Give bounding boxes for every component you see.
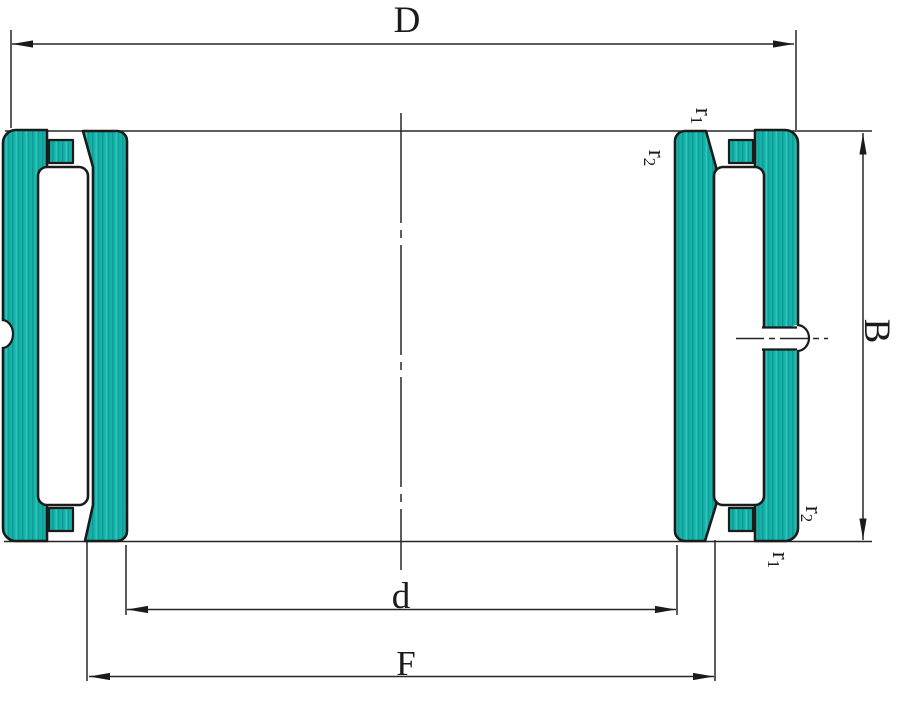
right-needle-roller — [714, 167, 764, 505]
right-cage-top — [729, 140, 753, 163]
arrow-F-left — [89, 673, 110, 680]
r1-top-sub: 1 — [688, 116, 707, 125]
dim-label-F-text: F — [396, 644, 415, 683]
drawing-canvas: D d F B r1 r2 r2 r1 — [0, 0, 900, 702]
dim-label-D: D — [394, 0, 421, 41]
left-cage-bottom — [49, 508, 73, 531]
arrow-d-right — [655, 606, 676, 613]
r2-top-base: r — [643, 150, 669, 158]
dim-label-d: d — [392, 576, 411, 617]
r2-bottom-sub: 2 — [798, 514, 817, 523]
radius-label-r1-bottom: r1 — [765, 552, 794, 569]
radius-label-r2-top: r2 — [641, 150, 670, 167]
r1-bottom-sub: 1 — [765, 560, 784, 569]
arrow-B-top — [859, 134, 866, 155]
r1-top-base: r — [690, 108, 716, 116]
left-cage-top — [49, 140, 73, 163]
dim-label-B-text: B — [857, 319, 898, 344]
dim-label-d-text: d — [392, 576, 411, 617]
dim-label-F: F — [396, 644, 415, 683]
left-needle-roller — [38, 167, 88, 505]
arrow-F-right — [693, 673, 714, 680]
right-inner-ring — [675, 131, 716, 541]
arrow-D-left — [12, 40, 33, 47]
arrow-D-right — [773, 40, 794, 47]
dimension-labels: D d F B r1 r2 r2 r1 — [392, 0, 898, 683]
radius-label-r2-bottom: r2 — [798, 506, 827, 523]
r1-bottom-base: r — [767, 552, 793, 560]
bearing-technical-drawing: D d F B r1 r2 r2 r1 — [0, 0, 900, 702]
arrow-B-bottom — [859, 519, 866, 540]
dim-label-B: B — [857, 319, 898, 344]
arrow-d-left — [127, 606, 148, 613]
dim-label-D-text: D — [394, 0, 421, 41]
r2-bottom-base: r — [800, 506, 826, 514]
r2-top-sub: 2 — [641, 158, 660, 167]
left-inner-ring — [83, 131, 127, 541]
radius-label-r1-top: r1 — [688, 108, 717, 125]
right-cage-bottom — [729, 508, 753, 531]
